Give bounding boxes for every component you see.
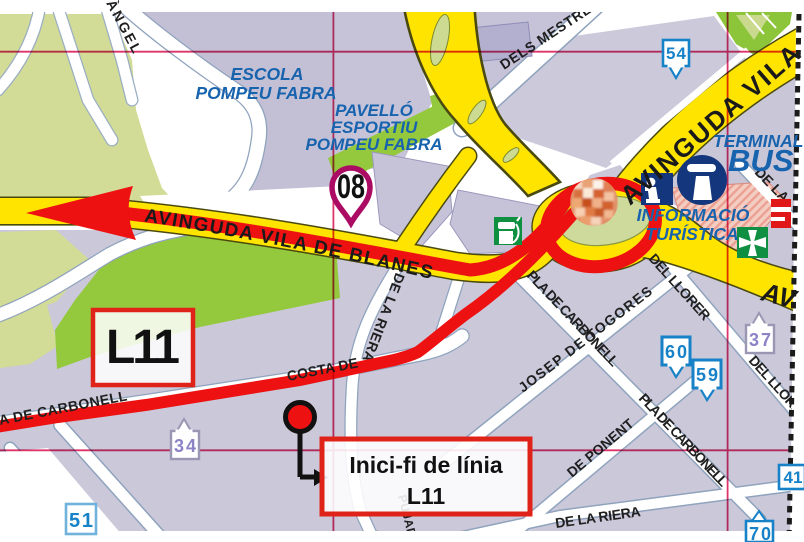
svg-text:TURÍSTICA: TURÍSTICA (645, 223, 738, 244)
svg-text:L11: L11 (106, 321, 180, 374)
svg-text:51: 51 (69, 510, 93, 532)
svg-text:08: 08 (337, 168, 365, 206)
svg-text:POMPEU FABRA: POMPEU FABRA (306, 135, 443, 154)
svg-text:INFORMACIÓ: INFORMACIÓ (637, 204, 750, 225)
svg-text:L11: L11 (407, 483, 446, 509)
svg-text:59: 59 (696, 365, 718, 385)
svg-text:54: 54 (666, 44, 687, 63)
svg-text:70: 70 (749, 524, 771, 542)
svg-text:60: 60 (665, 342, 687, 362)
svg-text:ESCOLA: ESCOLA (231, 64, 304, 84)
svg-text:BUS: BUS (728, 143, 794, 178)
svg-text:POMPEU FABRA: POMPEU FABRA (196, 83, 337, 103)
svg-text:34: 34 (174, 436, 196, 456)
svg-text:Inici-fi de línia: Inici-fi de línia (349, 452, 503, 478)
svg-text:37: 37 (749, 330, 771, 350)
svg-text:41: 41 (784, 468, 803, 487)
